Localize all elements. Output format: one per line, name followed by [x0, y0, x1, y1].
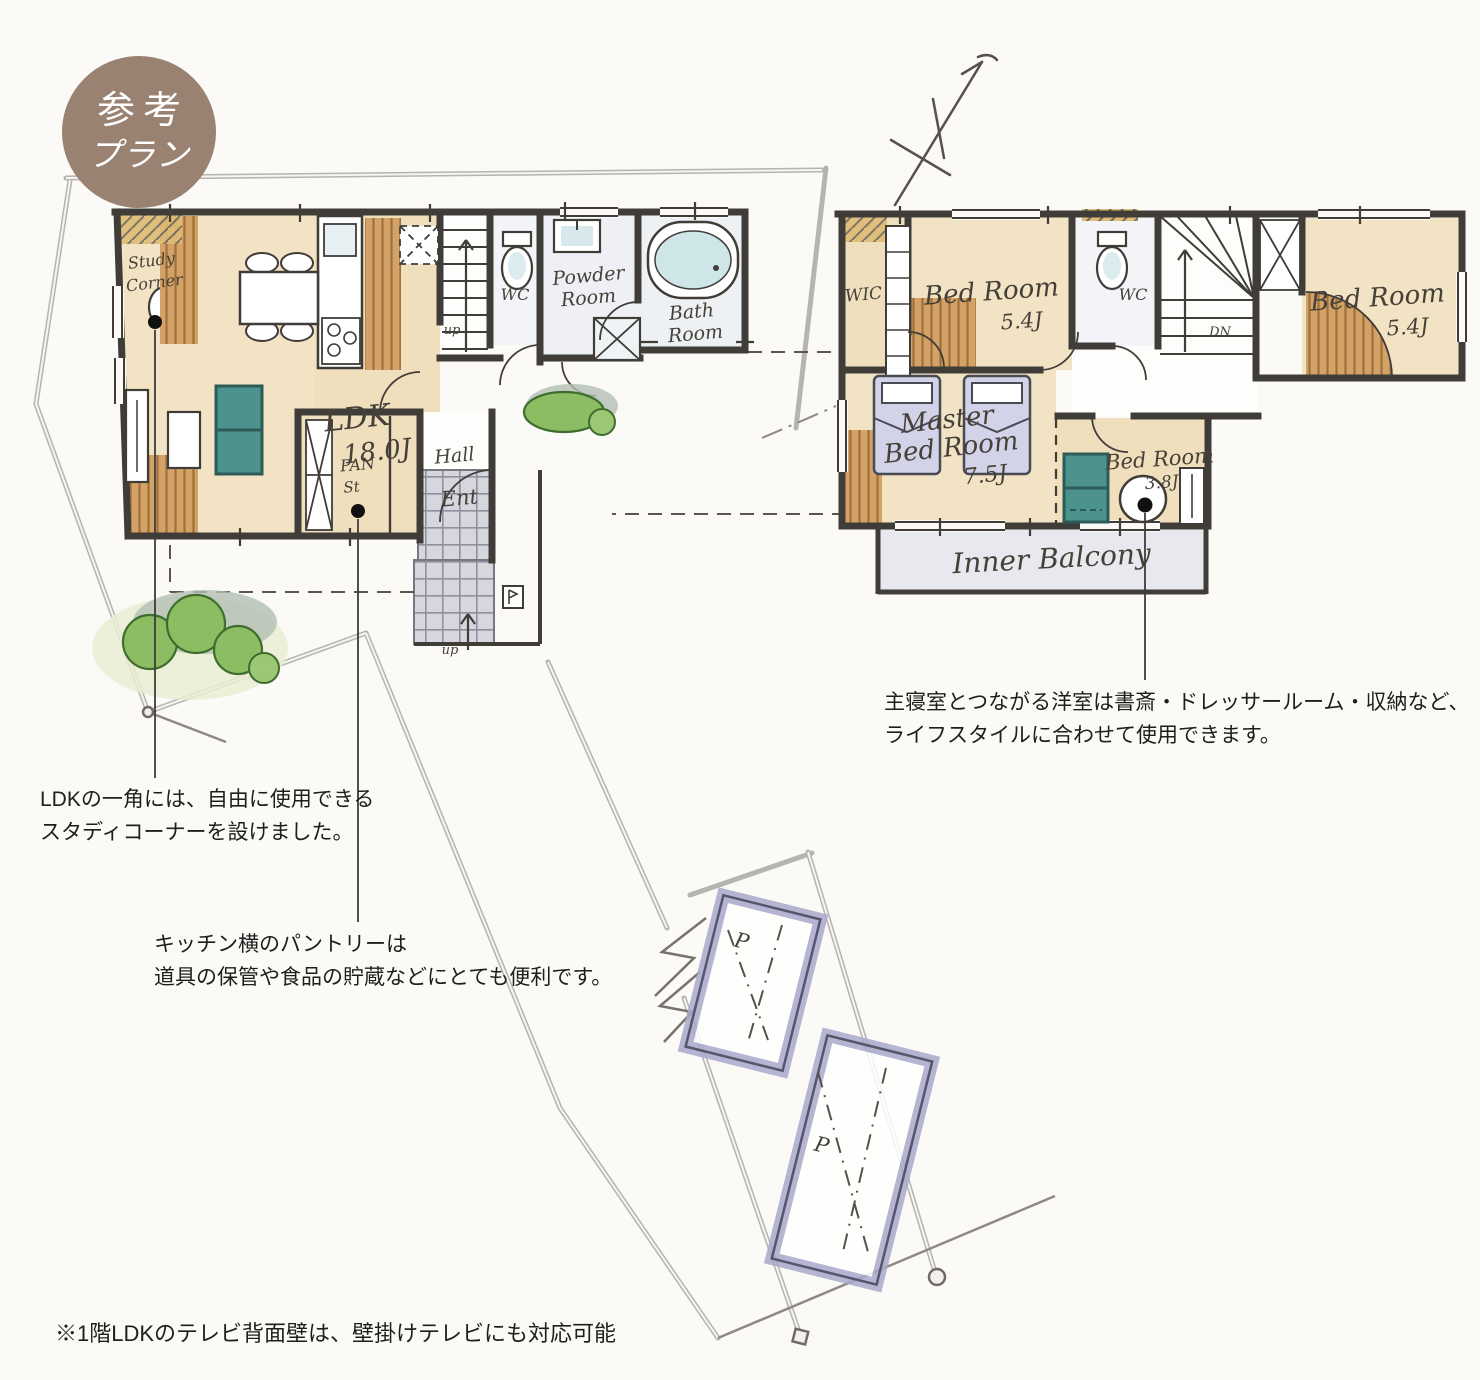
toilet2-icon: [1097, 232, 1127, 289]
wic-label: WIC: [844, 283, 883, 306]
bedroom3-closet: [1180, 468, 1204, 524]
hall-closet: [1260, 220, 1300, 290]
bedroom2-size-label: 5.4J: [1386, 313, 1431, 340]
footnote-text: ※1階LDKのテレビ背面壁は、壁掛けテレビにも対応可能: [55, 1316, 616, 1348]
entrance-tile: [418, 470, 492, 560]
kitchen-wood-floor: [365, 218, 401, 370]
north-arrow-icon: [891, 55, 997, 205]
pantry-st-label: St: [343, 477, 362, 496]
reference-plan-badge: 参考 プラン: [62, 56, 216, 208]
powder-sink-icon: [554, 220, 600, 252]
gate-marker: [503, 586, 523, 608]
approach-tile: [414, 560, 494, 644]
toilet-icon: [502, 232, 532, 289]
kitchen-counter: [318, 216, 362, 368]
floor-plan-sheet: P P: [0, 0, 1480, 1380]
stairs2-dn-label: DN: [1208, 325, 1231, 340]
teal-rug: [216, 386, 262, 474]
wc2-label: WC: [1119, 285, 1148, 304]
fridge-dashed-square: [400, 226, 438, 264]
parking-spaces: P P: [686, 895, 933, 1284]
master-size-label: 7.5J: [962, 461, 1009, 491]
bedroom3-size-label: 3.8J: [1144, 472, 1180, 494]
bathtub-icon: [648, 222, 738, 298]
annotation-line: LDKの一角には、自由に使用できる: [40, 783, 374, 816]
annotation-line: 道具の保管や食品の貯蔵などにとても便利です。: [154, 961, 612, 994]
stairs1-up-label: up: [444, 323, 461, 338]
study-hatch-ceiling: [120, 214, 182, 244]
annotation-line: ライフスタイルに合わせて使用できます。: [884, 719, 1469, 752]
entrance-label: Ent: [439, 484, 480, 511]
annotation-pantry: キッチン横のパントリーは 道具の保管や食品の貯蔵などにとても便利です。: [154, 928, 612, 994]
hall-label: Hall: [433, 443, 476, 468]
annotation-study-corner: LDKの一角には、自由に使用できる スタディコーナーを設けました。: [40, 783, 374, 849]
floor1-plan: up: [92, 206, 900, 700]
bedroom1-size-label: 5.4J: [1000, 307, 1045, 334]
annotation-bedroom: 主寝室とつながる洋室は書斎・ドレッサールーム・収納など、 ライフスタイルに合わせ…: [884, 686, 1469, 752]
garden-bushes: [92, 590, 288, 700]
wc1-label: WC: [501, 285, 530, 304]
floor2-plan: DN: [836, 208, 1468, 594]
badge-line1: 参考: [97, 87, 189, 133]
entry-bush: [524, 384, 618, 435]
annotation-line: 主寝室とつながる洋室は書斎・ドレッサールーム・収納など、: [884, 686, 1469, 719]
annotation-line: キッチン横のパントリーは: [154, 928, 612, 961]
annotation-line: スタディコーナーを設けました。: [40, 816, 374, 849]
bedroom3-teal-rug: [1064, 454, 1108, 522]
badge-line2: プラン: [88, 133, 190, 177]
pantry-label: PAN: [338, 453, 376, 475]
ldk-label: LDK: [321, 398, 393, 440]
approach-up-label: up: [442, 643, 459, 658]
wic-hatch-ceiling: [843, 216, 887, 242]
